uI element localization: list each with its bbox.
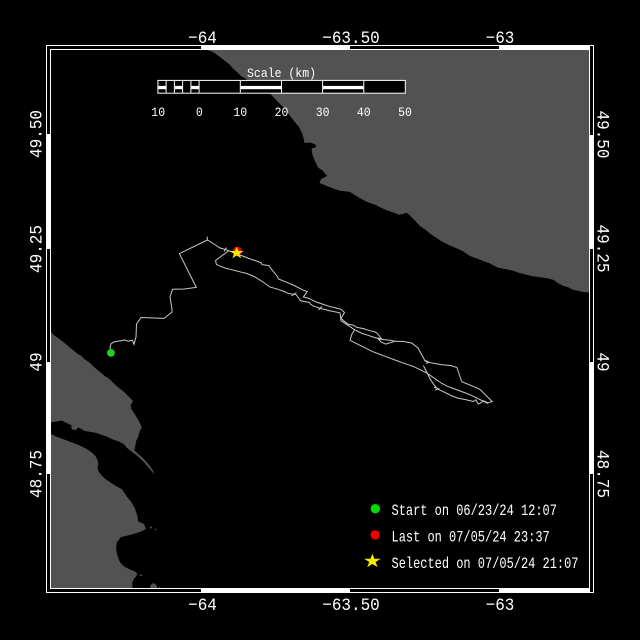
svg-text:50: 50 (398, 106, 412, 121)
svg-text:0: 0 (196, 106, 203, 121)
svg-text:Scale (km): Scale (km) (247, 67, 316, 82)
svg-text:49.50: 49.50 (591, 111, 611, 159)
svg-text:10: 10 (151, 106, 165, 121)
svg-text:−64: −64 (188, 30, 217, 50)
svg-text:−63: −63 (486, 30, 515, 50)
svg-text:49.25: 49.25 (28, 225, 48, 273)
svg-text:49.50: 49.50 (28, 110, 48, 158)
svg-text:Selected on 07/05/24 21:07: Selected on 07/05/24 21:07 (392, 556, 579, 574)
svg-text:20: 20 (275, 106, 289, 121)
svg-text:48.75: 48.75 (28, 450, 48, 498)
svg-text:−63: −63 (486, 597, 515, 617)
svg-text:Start on 06/23/24 12:07: Start on 06/23/24 12:07 (392, 503, 557, 521)
svg-text:−64: −64 (188, 597, 217, 617)
svg-text:30: 30 (316, 106, 330, 121)
svg-text:−63.50: −63.50 (322, 597, 380, 617)
svg-text:49.25: 49.25 (591, 225, 611, 273)
svg-text:40: 40 (357, 106, 371, 121)
svg-text:49: 49 (28, 352, 48, 371)
svg-text:−63.50: −63.50 (322, 30, 380, 50)
svg-text:10: 10 (233, 106, 247, 121)
svg-text:48.75: 48.75 (591, 450, 611, 498)
svg-text:49: 49 (591, 352, 611, 371)
svg-text:Last on 07/05/24 23:37: Last on 07/05/24 23:37 (392, 529, 550, 547)
